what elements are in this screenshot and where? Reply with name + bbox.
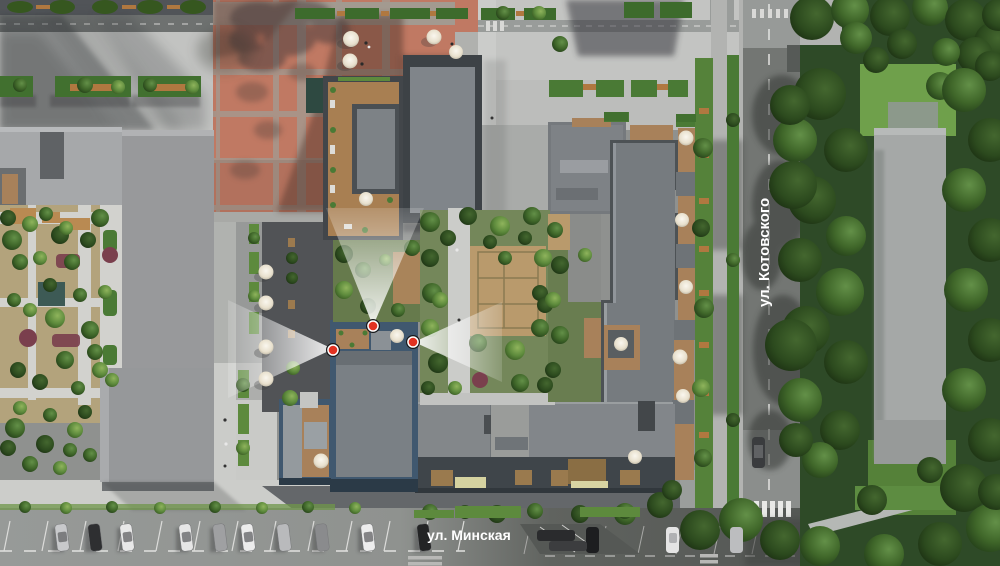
svg-text:ул. Котовского: ул. Котовского	[756, 198, 773, 307]
svg-text:ул. Минская: ул. Минская	[427, 527, 511, 543]
